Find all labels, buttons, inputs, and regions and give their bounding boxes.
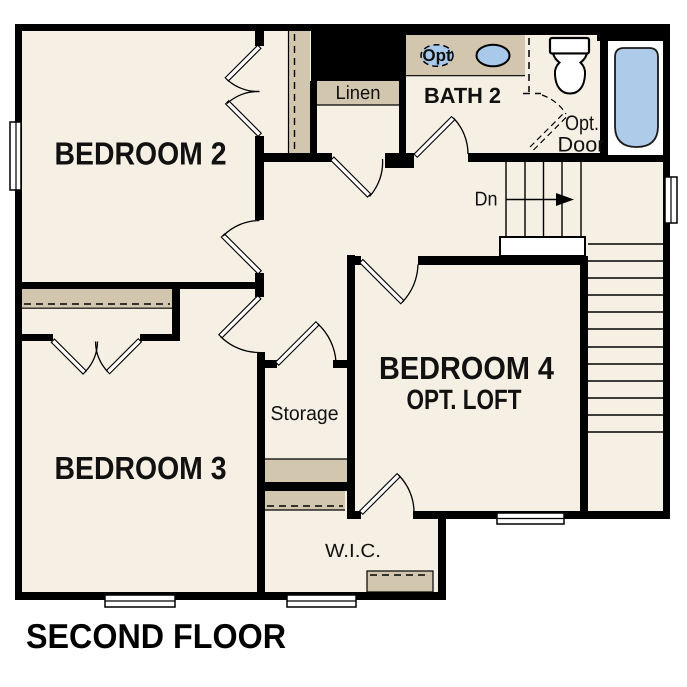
svg-text:BEDROOM 4: BEDROOM 4 [379, 350, 554, 386]
svg-text:BEDROOM 2: BEDROOM 2 [55, 136, 227, 172]
svg-text:OPT. LOFT: OPT. LOFT [407, 384, 522, 415]
svg-text:Linen: Linen [336, 83, 381, 104]
svg-text:Storage: Storage [271, 403, 339, 425]
svg-text:W.I.C.: W.I.C. [325, 541, 381, 562]
svg-text:Door: Door [558, 134, 605, 157]
svg-text:Opt: Opt [422, 46, 452, 65]
svg-text:Dn: Dn [475, 189, 498, 211]
svg-text:BATH 2: BATH 2 [424, 83, 501, 108]
svg-text:SECOND FLOOR: SECOND FLOOR [26, 618, 286, 656]
svg-text:BEDROOM 3: BEDROOM 3 [55, 450, 227, 486]
svg-text:Opt.: Opt. [565, 112, 599, 135]
